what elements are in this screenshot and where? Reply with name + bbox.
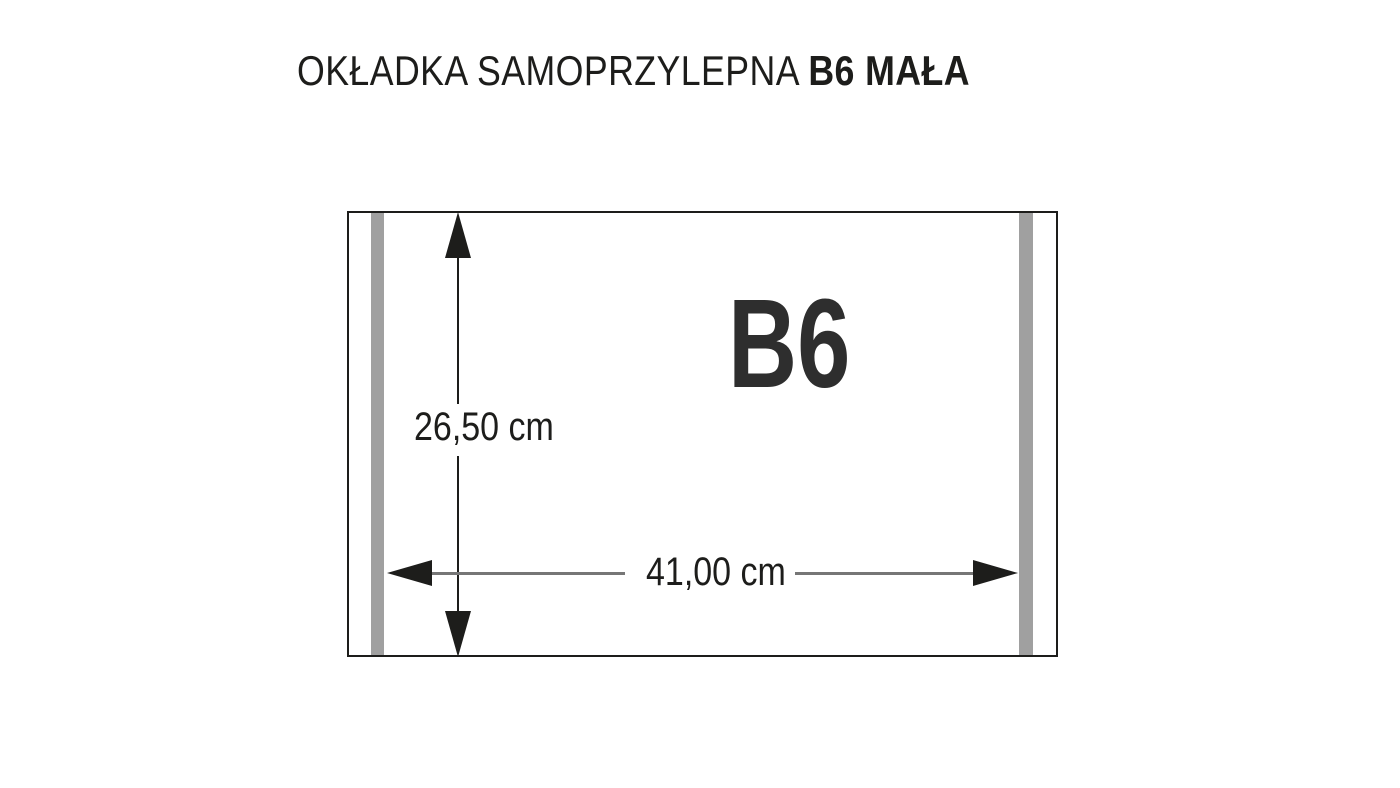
glue-strip-left	[371, 213, 384, 655]
page-title: OKŁADKA SAMOPRZYLEPNA B6 MAŁA	[297, 50, 970, 92]
arrow-up-icon	[445, 212, 471, 258]
page-title-bold: B6 MAŁA	[808, 47, 970, 94]
format-label: B6	[728, 281, 850, 407]
width-dimension-line-left	[432, 572, 625, 575]
page: OKŁADKA SAMOPRZYLEPNA B6 MAŁA B6 26,50 c…	[0, 0, 1400, 788]
height-value: 26,50 cm	[414, 407, 554, 447]
height-dimension-line-bottom	[457, 456, 459, 612]
width-dimension-line-right	[795, 572, 973, 575]
arrow-down-icon	[445, 611, 471, 657]
glue-strip-right	[1019, 213, 1033, 655]
arrow-left-icon	[387, 560, 432, 586]
width-value: 41,00 cm	[646, 552, 786, 592]
height-dimension-line-top	[457, 256, 459, 404]
arrow-right-icon	[973, 560, 1018, 586]
page-title-regular: OKŁADKA SAMOPRZYLEPNA	[297, 47, 808, 94]
